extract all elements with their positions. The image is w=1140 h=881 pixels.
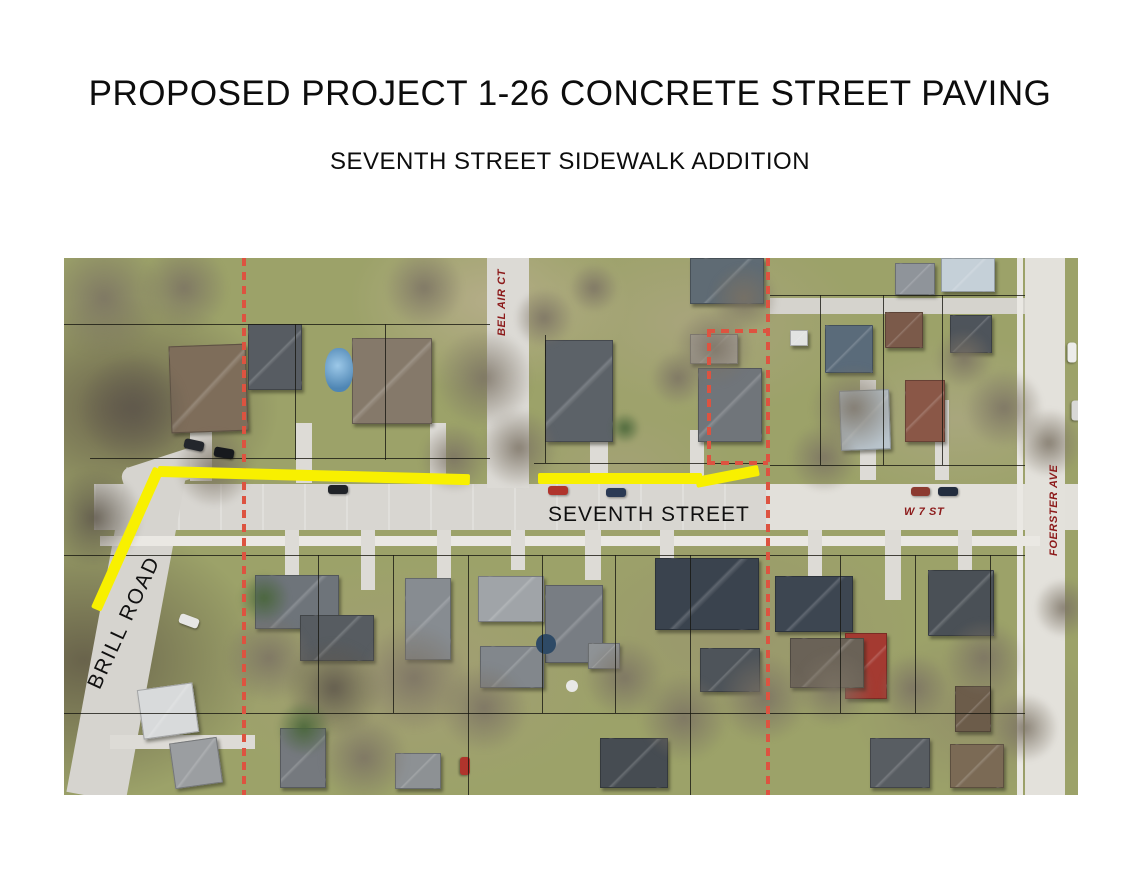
parcel-line [295,324,296,460]
driveway [958,530,972,570]
parcel-line [385,324,386,460]
driveway [511,530,525,570]
driveway [361,530,375,590]
house [545,340,613,442]
swimming-pool [325,348,353,392]
yard-dome [566,680,578,692]
aerial-map: SEVENTH STREETBRILL ROADBEL AIR CTW 7 ST… [64,258,1078,795]
tree [514,288,574,348]
tree [569,263,619,313]
parcel-line [840,555,841,713]
parcel-line [820,295,821,465]
tree [439,663,529,753]
boundary-box-left [707,329,711,463]
car [606,488,626,497]
driveway [285,530,299,576]
house [790,330,808,346]
house [169,737,223,789]
house [885,312,923,348]
car [178,613,200,629]
project-exhibit-page: PROPOSED PROJECT 1-26 CONCRETE STREET PA… [0,0,1140,881]
parcel-line [90,458,490,459]
trampoline [536,634,556,654]
parcel-line [468,555,469,795]
boundary-line-east [766,258,770,795]
parcel-line [615,555,616,713]
tree [384,258,464,328]
tree [944,618,1024,698]
parcel-line [64,713,1025,714]
street-label-bel-air-ct: BEL AIR CT [496,269,508,336]
house [950,744,1004,788]
boundary-box-bottom [707,461,768,465]
parcel-line [393,555,394,713]
street-label-w-7-st: W 7 ST [904,506,944,518]
car [911,487,930,496]
tree [989,693,1059,763]
tree [789,423,859,493]
house [895,263,935,295]
house [137,682,199,739]
house [352,338,432,424]
parcel-line [942,295,943,465]
tree [609,412,641,444]
parcel-line [883,295,884,465]
house [775,576,853,632]
boundary-line-west [242,258,246,795]
tree [934,328,994,388]
street-label-seventh-street: SEVENTH STREET [548,503,750,527]
parcel-line [990,555,991,713]
tree [319,713,409,795]
page-subtitle: SEVENTH STREET SIDEWALK ADDITION [0,148,1140,176]
house [655,558,759,630]
tree [639,673,729,763]
parcel-line [542,555,543,713]
house [941,258,995,292]
parcel-line [64,324,490,325]
sidewalk-highlight-seventh-east [538,473,702,484]
street-label-foerster-ave: FOERSTER AVE [1048,464,1060,556]
tree [276,700,332,756]
boundary-box-top [707,329,768,333]
page-title: PROPOSED PROJECT 1-26 CONCRETE STREET PA… [0,74,1140,114]
parcel-line [770,295,1025,296]
tree [79,353,189,463]
car [548,486,568,495]
parcel-line [770,465,1025,466]
house [248,324,302,390]
car [1072,401,1079,421]
tree [794,648,874,728]
driveway [808,530,822,576]
parcel-line [318,555,319,713]
car [1068,343,1077,363]
parcel-line [545,335,546,463]
tree [1014,408,1078,478]
parcel-line [64,555,1025,556]
house [870,738,930,788]
car [328,485,348,494]
house [478,576,544,622]
car [938,487,958,496]
parcel-line [915,555,916,713]
parcel-line [690,555,691,795]
house [905,380,945,442]
driveway [885,530,901,600]
